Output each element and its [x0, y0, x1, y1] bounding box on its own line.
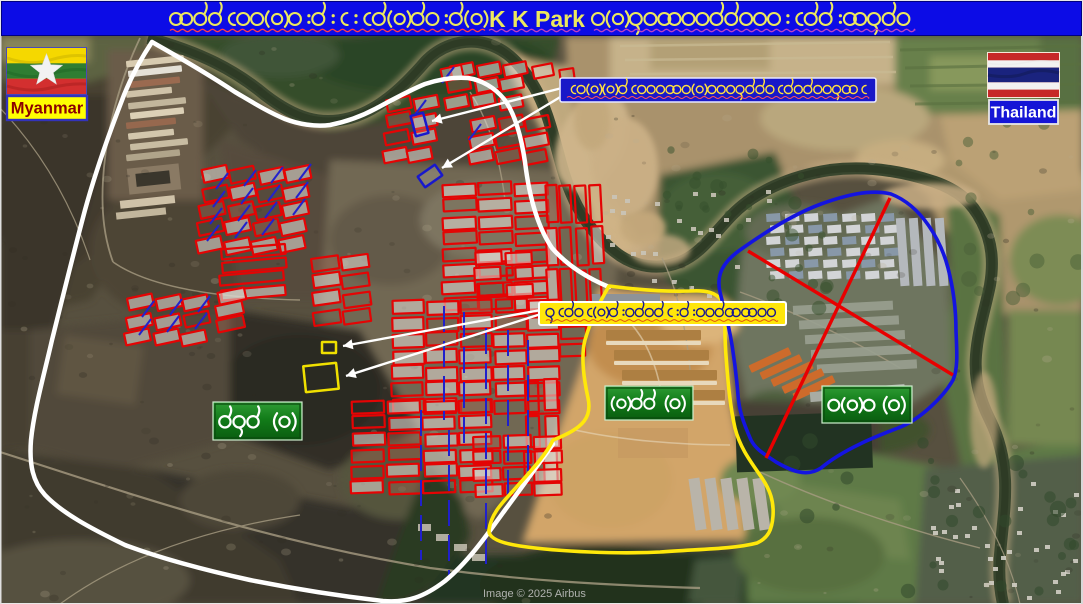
svg-text:Image © 2025 Airbus: Image © 2025 Airbus: [483, 588, 586, 600]
svg-text:Thailand: Thailand: [991, 105, 1057, 122]
svg-text:K K Park: K K Park: [489, 6, 585, 32]
svg-text:Myanmar: Myanmar: [11, 100, 84, 118]
